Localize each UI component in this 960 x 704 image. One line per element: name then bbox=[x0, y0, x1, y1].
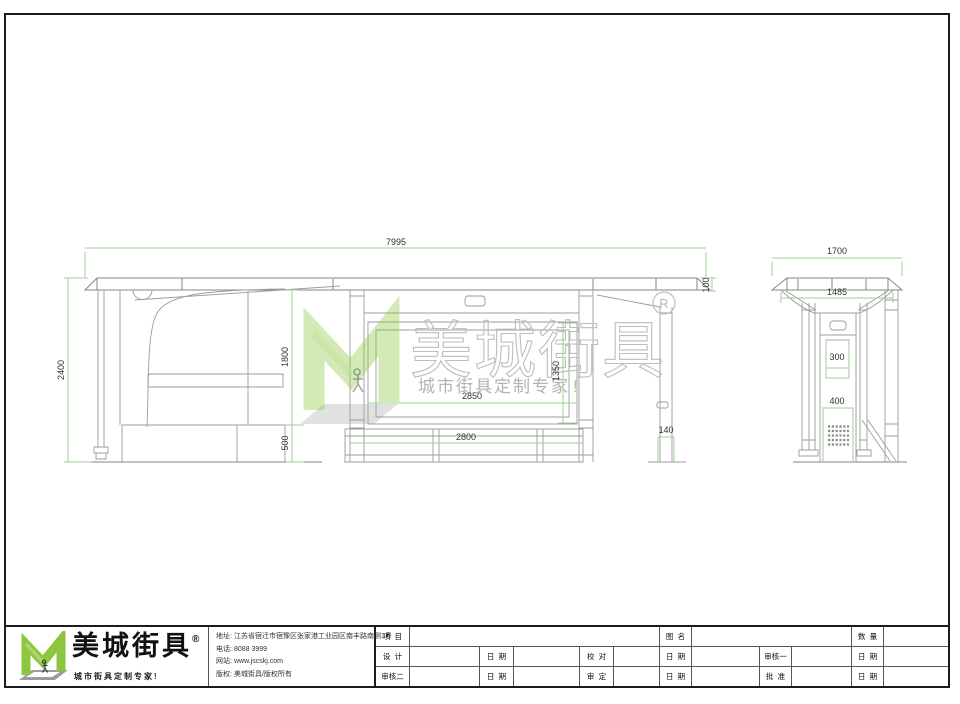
company-info: 地址:江苏省宿迁市宿豫区张家港工业园区南丰路南侧1号 电话:8088 3999 … bbox=[216, 631, 374, 681]
phone-label: 电话: bbox=[216, 646, 232, 653]
dim-front-lightbox-height: 1350 bbox=[551, 361, 561, 381]
cell-date-label-2: 日 期 bbox=[660, 647, 692, 667]
brand-tagline: 城市街具定制专家! bbox=[74, 671, 159, 682]
cell-proofread-value bbox=[614, 647, 660, 667]
side-left-post bbox=[799, 303, 818, 456]
dim-front-post-width: 140 bbox=[658, 425, 673, 435]
dim-side-upper-panel-width: 300 bbox=[829, 352, 844, 362]
dim-side-roof-width: 1700 bbox=[827, 246, 847, 256]
cell-quantity-value bbox=[884, 627, 948, 647]
dim-front-bench-width: 2800 bbox=[456, 432, 476, 442]
watermark-tagline-text: 城市街具定制专家 bbox=[418, 377, 570, 396]
dim-side-lower-panel-width: 400 bbox=[829, 396, 844, 406]
front-roof-lamp-arc bbox=[133, 290, 152, 300]
cell-date-value-2 bbox=[692, 647, 760, 667]
cell-project-value bbox=[410, 627, 660, 647]
dimline-side-roof-width bbox=[772, 258, 902, 276]
cell-reviewer2-value bbox=[410, 667, 480, 686]
info-copyright: 版权:美城街具/版权所有 bbox=[216, 669, 374, 682]
cell-date-label-6: 日 期 bbox=[852, 667, 884, 686]
company-logo-block: 美城街具® 城市街具定制专家! bbox=[6, 627, 208, 686]
dim-front-roof-thickness: 100 bbox=[701, 277, 711, 292]
registered-mark: ® bbox=[192, 634, 199, 645]
copyright-value: 美城街具/版权所有 bbox=[234, 671, 292, 678]
cell-reviewer1-value bbox=[792, 647, 852, 667]
dim-front-clear-height: 1800 bbox=[280, 347, 290, 367]
cell-date-value-6 bbox=[884, 667, 948, 686]
side-elevation bbox=[772, 278, 907, 462]
cell-date-label-3: 日 期 bbox=[852, 647, 884, 667]
address-value: 江苏省宿迁市宿豫区张家港工业园区南丰路南侧1号 bbox=[234, 633, 392, 640]
cell-approval-label: 审 定 bbox=[580, 667, 614, 686]
cell-approve-label: 批 准 bbox=[760, 667, 792, 686]
titleblock-divider bbox=[208, 627, 209, 686]
watermark-logo-m bbox=[314, 326, 389, 410]
info-website: 网站:www.jscskj.com bbox=[216, 656, 374, 669]
cell-date-value-1 bbox=[514, 647, 580, 667]
copyright-label: 版权: bbox=[216, 671, 232, 678]
company-logo-icon bbox=[17, 631, 73, 685]
dimline-front-total-height bbox=[64, 278, 92, 462]
info-address: 地址:江苏省宿迁市宿豫区张家港工业园区南丰路南侧1号 bbox=[216, 631, 374, 644]
watermark: 美城街具 城市街具定制专家 ! R bbox=[300, 292, 675, 424]
cell-date-label-4: 日 期 bbox=[480, 667, 514, 686]
info-phone: 电话:8088 3999 bbox=[216, 644, 374, 657]
cell-drawing-name-value bbox=[692, 627, 852, 647]
cad-drawing: 美城街具 城市街具定制专家 ! R 7995 2400 1800 500 285… bbox=[0, 0, 960, 625]
website-value: www.jscskj.com bbox=[234, 658, 283, 665]
address-label: 地址: bbox=[216, 633, 232, 640]
dim-front-total-height: 2400 bbox=[56, 360, 66, 380]
cell-date-label-5: 日 期 bbox=[660, 667, 692, 686]
dim-front-lightbox-width: 2850 bbox=[462, 391, 482, 401]
cell-quantity-label: 数 量 bbox=[852, 627, 884, 647]
dim-front-total-width: 7995 bbox=[386, 237, 406, 247]
front-base-block bbox=[122, 425, 285, 462]
phone-value: 8088 3999 bbox=[234, 646, 267, 653]
brand-name: 美城街具® bbox=[72, 633, 199, 660]
cell-date-value-3 bbox=[884, 647, 948, 667]
side-right-post bbox=[857, 303, 871, 456]
side-panel-edge bbox=[885, 290, 898, 462]
cell-approve-value bbox=[792, 667, 852, 686]
dimline-front-total-width bbox=[85, 248, 706, 277]
front-logo-plate bbox=[465, 296, 485, 306]
brand-name-text: 美城街具 bbox=[72, 631, 192, 661]
dim-front-base-height: 500 bbox=[280, 435, 290, 450]
side-column-plate bbox=[830, 321, 846, 330]
cell-reviewer1-label: 审核一 bbox=[760, 647, 792, 667]
cell-proofread-label: 校 对 bbox=[580, 647, 614, 667]
cell-date-value-4 bbox=[514, 667, 580, 686]
cell-design-value bbox=[410, 647, 480, 667]
front-left-post bbox=[94, 290, 108, 459]
drawing-sheet: { "colors": { "line": "#9c9c9c", "dim_li… bbox=[0, 0, 960, 704]
watermark-registered-letter: R bbox=[659, 296, 668, 311]
cell-approval-value bbox=[614, 667, 660, 686]
dim-side-body-width: 1485 bbox=[827, 287, 847, 297]
watermark-brand-text: 美城街具 bbox=[410, 317, 666, 386]
title-block: 美城街具® 城市街具定制专家! 地址:江苏省宿迁市宿豫区张家港工业园区南丰路南侧… bbox=[6, 625, 948, 686]
cell-project-label: 项 目 bbox=[376, 627, 410, 647]
cell-date-value-5 bbox=[692, 667, 760, 686]
side-speaker-grid bbox=[828, 427, 849, 445]
front-right-post-detail bbox=[657, 402, 668, 408]
title-table: 项 目 图 名 数 量 设 计 日 期 校 对 日 期 审核一 日 期 审核二 … bbox=[374, 627, 948, 686]
cell-date-label-1: 日 期 bbox=[480, 647, 514, 667]
front-roof bbox=[85, 278, 710, 290]
cell-reviewer2-label: 审核二 bbox=[376, 667, 410, 686]
website-label: 网站: bbox=[216, 658, 232, 665]
watermark-exclamation: ! bbox=[573, 377, 578, 396]
cell-drawing-name-label: 图 名 bbox=[660, 627, 692, 647]
cell-design-label: 设 计 bbox=[376, 647, 410, 667]
